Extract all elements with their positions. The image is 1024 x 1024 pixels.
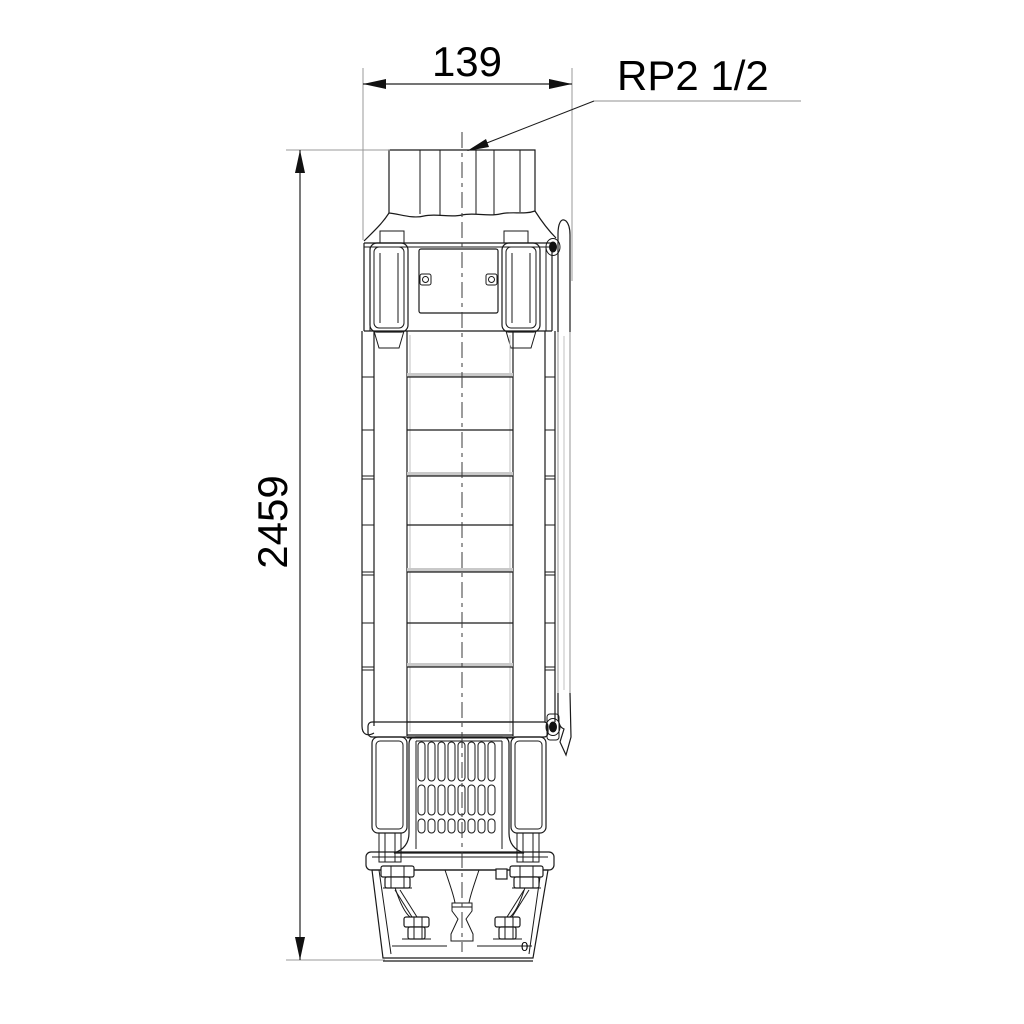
dimension-arrow-down-icon — [295, 937, 305, 960]
valve-casing — [364, 211, 556, 348]
height-dimension-value: 2459 — [249, 475, 296, 568]
pump-technical-drawing: 0 139 2459 RP2 1/2 — [0, 0, 1024, 1024]
strainer-clamp-right — [511, 737, 546, 862]
strainer-clamp-left — [372, 737, 407, 862]
dimension-arrow-up-icon — [295, 150, 305, 173]
height-dimension: 2459 — [249, 150, 390, 960]
strap-left — [362, 331, 374, 735]
drawing-page: 0 139 2459 RP2 1/2 — [0, 0, 1024, 1024]
dimension-arrow-left-icon — [363, 79, 386, 89]
chamber-sleeve — [407, 331, 513, 738]
width-dimension: 139 — [363, 38, 572, 281]
connection-label: RP2 1/2 — [617, 52, 769, 99]
motor-section: 0 — [372, 866, 548, 961]
nameplate-screw-left — [420, 274, 431, 285]
stage-joints — [407, 373, 513, 722]
pump-outline: 0 — [362, 150, 571, 961]
nameplate-screw-right — [486, 274, 497, 285]
connection-callout: RP2 1/2 — [467, 52, 801, 151]
clamp-right — [502, 243, 540, 332]
width-dimension-value: 139 — [432, 38, 502, 85]
cable-guard — [546, 220, 571, 755]
motor-bolt-left — [381, 866, 431, 939]
motor-bolt-right — [493, 866, 543, 939]
dimension-arrow-right-icon — [549, 79, 572, 89]
motor-mark: 0 — [521, 939, 528, 954]
clamp-left — [370, 243, 408, 332]
suction-strainer — [394, 737, 524, 853]
strainer-slots — [418, 742, 495, 833]
nameplate — [419, 249, 498, 313]
strap-right — [545, 331, 555, 722]
leader-arrow-icon — [467, 139, 489, 151]
